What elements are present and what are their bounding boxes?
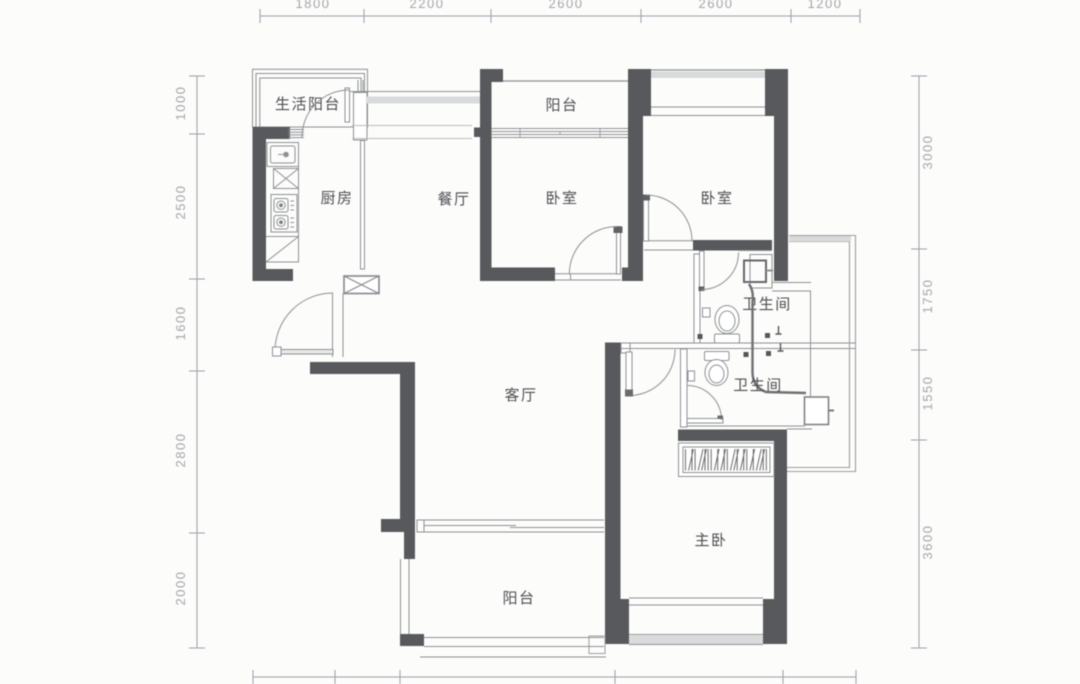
svg-text:餐厅: 餐厅 (437, 191, 470, 208)
svg-text:2000: 2000 (173, 571, 188, 606)
svg-text:1600: 1600 (173, 306, 188, 341)
svg-text:2600: 2600 (549, 0, 584, 11)
svg-text:1200: 1200 (808, 0, 843, 11)
svg-text:1550: 1550 (920, 376, 935, 411)
svg-text:2200: 2200 (410, 0, 445, 11)
svg-text:厨房: 厨房 (320, 190, 353, 207)
svg-text:3000: 3000 (920, 135, 935, 170)
svg-text:2500: 2500 (173, 185, 188, 220)
svg-text:卫生间: 卫生间 (742, 296, 792, 313)
svg-text:1000: 1000 (173, 86, 188, 121)
svg-text:卫生间: 卫生间 (733, 377, 783, 394)
svg-text:1750: 1750 (920, 279, 935, 314)
svg-text:卧室: 卧室 (700, 190, 733, 207)
svg-text:2600: 2600 (699, 0, 734, 11)
svg-text:主卧: 主卧 (694, 532, 727, 549)
svg-text:卧室: 卧室 (545, 190, 578, 207)
svg-text:2800: 2800 (173, 433, 188, 468)
svg-text:3600: 3600 (920, 525, 935, 560)
svg-text:1800: 1800 (296, 0, 331, 11)
svg-text:客厅: 客厅 (504, 387, 537, 404)
svg-text:生活阳台: 生活阳台 (275, 96, 341, 113)
svg-text:阳台: 阳台 (545, 97, 578, 114)
svg-text:阳台: 阳台 (502, 590, 535, 607)
